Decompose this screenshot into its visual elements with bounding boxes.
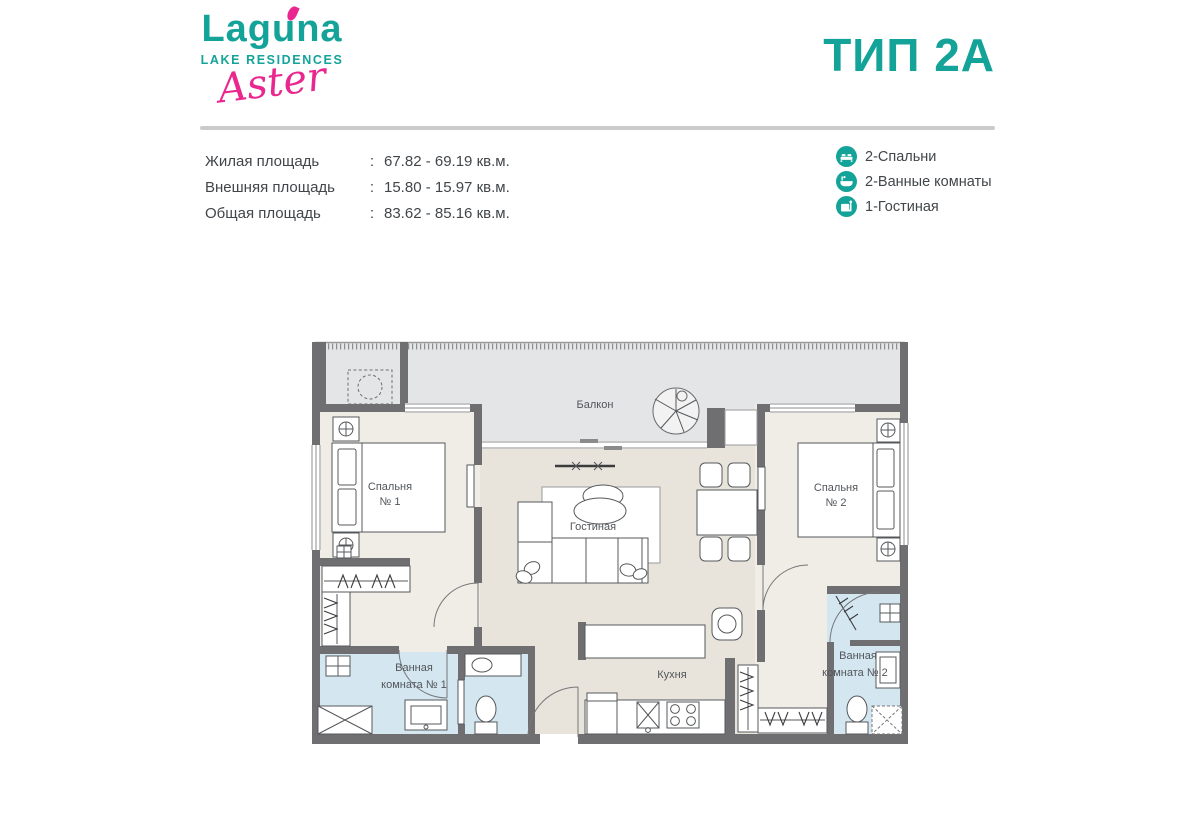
toilet [476, 696, 496, 722]
toilet-tank [475, 722, 497, 734]
kitchen-island [585, 625, 705, 658]
sink-counter [465, 654, 521, 676]
page-title: ТИП 2А [700, 28, 995, 82]
svg-text:№ 2: № 2 [826, 497, 847, 509]
spec-colon: : [362, 179, 382, 196]
svg-text:комната № 2: комната № 2 [822, 667, 888, 679]
fridge [587, 693, 617, 734]
brochure-page: Laguna LAKE RESIDENCES Aster ТИП 2А Жила… [0, 0, 1200, 840]
legend-bathrooms: 2-Ванные комнаты [836, 169, 992, 194]
legend-label: 1-Гостиная [865, 199, 939, 215]
spec-label: Внешняя площадь [205, 179, 362, 196]
spec-row-total-area: Общая площадь : 83.62 - 85.16 кв.м. [205, 200, 510, 226]
bed-icon [836, 146, 857, 167]
label-living: Гостиная [570, 521, 616, 533]
plant [653, 388, 699, 434]
spec-colon: : [362, 205, 382, 222]
pocket-door-bedroom2 [758, 467, 765, 510]
area-specs: Жилая площадь : 67.82 - 69.19 кв.м. Внеш… [205, 148, 510, 226]
legend-bedrooms: 2-Спальни [836, 144, 992, 169]
dining-chair [700, 537, 722, 561]
spec-value: 83.62 - 85.16 кв.м. [384, 205, 510, 222]
dining-chair [728, 537, 750, 561]
pocket-door-bedroom1 [467, 465, 474, 507]
toilet-tank [846, 722, 868, 734]
svg-text:№ 1: № 1 [380, 496, 401, 508]
legend-label: 2-Ванные комнаты [865, 174, 992, 190]
label-bedroom1: Спальня [368, 481, 412, 493]
spec-row-living-area: Жилая площадь : 67.82 - 69.19 кв.м. [205, 148, 510, 174]
bar-stool [712, 608, 742, 640]
legend-label: 2-Спальни [865, 149, 936, 165]
laguna-logo: Laguna LAKE RESIDENCES Aster [196, 10, 348, 103]
label-balcony: Балкон [577, 399, 614, 411]
logo-text: Laguna [201, 8, 342, 50]
label-bathroom1: Ванная [395, 662, 433, 674]
dining-table [697, 490, 757, 535]
room-legend: 2-Спальни 2-Ванные комнаты 1-Гостиная [836, 144, 992, 219]
legend-living: 1-Гостиная [836, 194, 992, 219]
spec-value: 67.82 - 69.19 кв.м. [384, 153, 510, 170]
label-kitchen: Кухня [657, 669, 686, 681]
spec-label: Жилая площадь [205, 153, 362, 170]
bathtub-icon [836, 171, 857, 192]
spec-colon: : [362, 153, 382, 170]
label-bathroom2: Ванная [839, 650, 877, 662]
door-leaf [458, 680, 464, 724]
dining-chair [728, 463, 750, 487]
toilet [847, 696, 867, 722]
spec-row-external-area: Внешняя площадь : 15.80 - 15.97 кв.м. [205, 174, 510, 200]
spec-label: Общая площадь [205, 205, 362, 222]
armchair-icon [836, 196, 857, 217]
dining-chair [700, 463, 722, 487]
logo-wordmark: Laguna [196, 10, 348, 50]
balcony-niche [725, 410, 757, 445]
header-divider [200, 126, 995, 130]
svg-text:комната № 1: комната № 1 [381, 679, 447, 691]
spec-value: 15.80 - 15.97 кв.м. [384, 179, 510, 196]
floor-plan: Балкон Спальня № 1 Гостиная Спальня № 2 … [310, 330, 910, 750]
label-bedroom2: Спальня [814, 482, 858, 494]
